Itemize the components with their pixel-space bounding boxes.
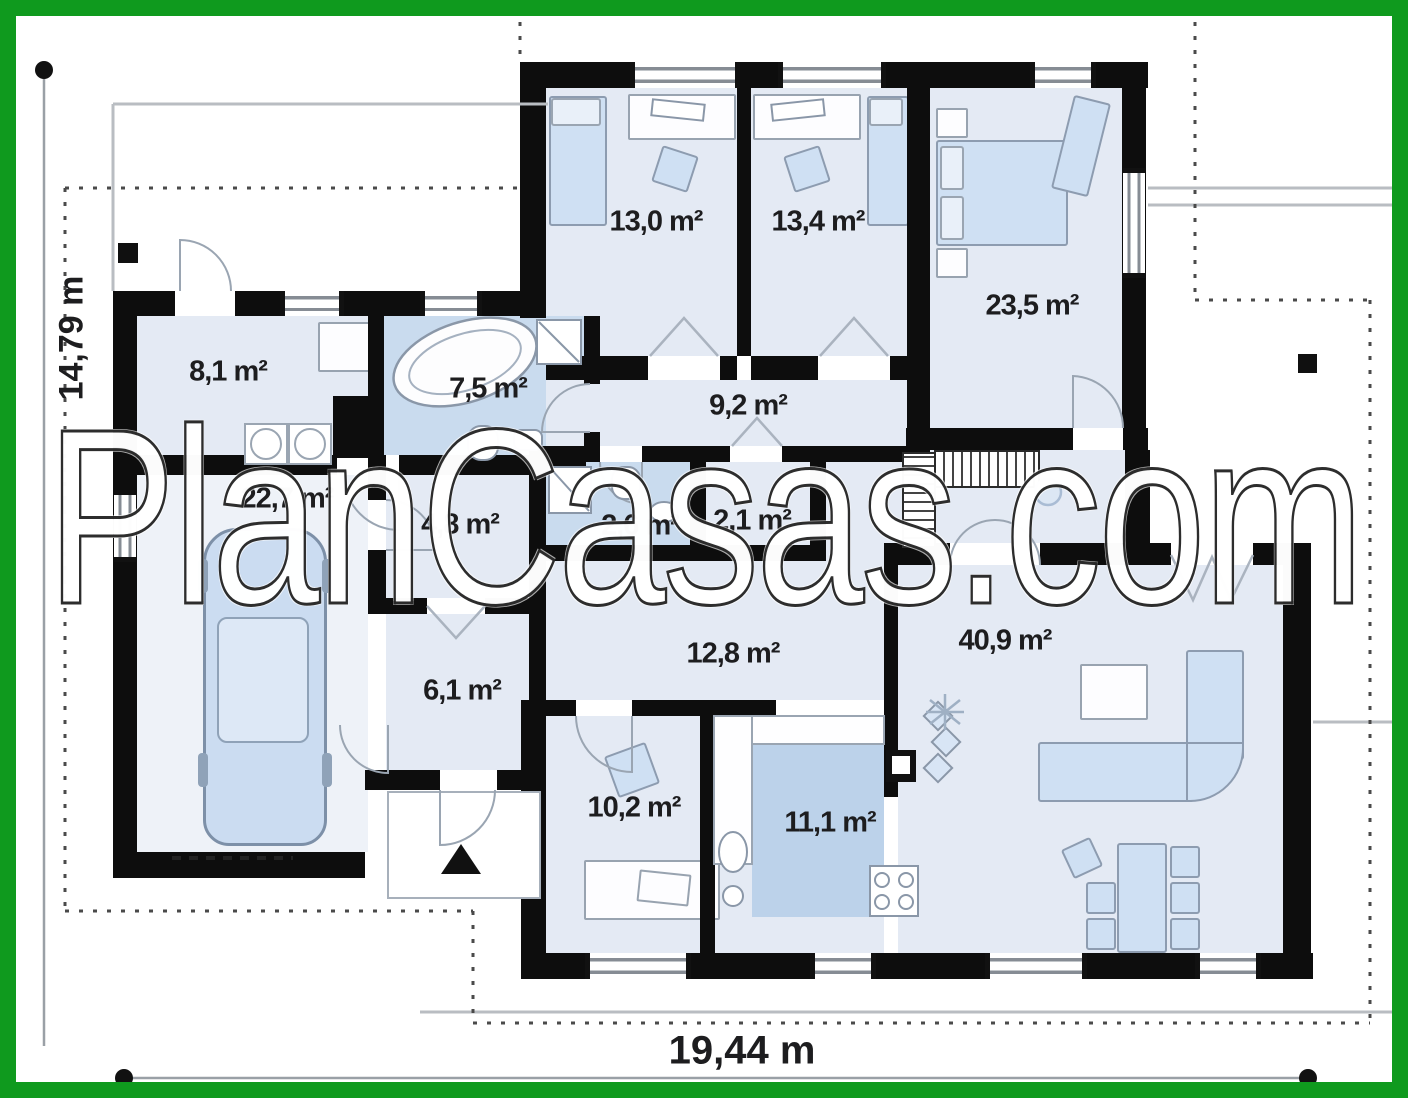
label-master-bedroom: 23,5 m² xyxy=(986,290,1079,323)
kitchen-stove xyxy=(870,866,918,916)
label-closet: 2,1 m² xyxy=(713,505,791,538)
kitchen-sink xyxy=(719,832,747,872)
label-hall-small: 4,8 m² xyxy=(421,509,499,542)
label-bathroom: 7,5 m² xyxy=(449,373,527,406)
entrance-porch xyxy=(388,792,540,898)
label-corridor: 9,2 m² xyxy=(709,390,787,423)
roof-eave-lines xyxy=(113,104,1396,1012)
shower-bathroom xyxy=(537,320,581,364)
plan-linework xyxy=(0,0,1408,1098)
desk-monitors xyxy=(651,99,824,120)
ceiling-lamp xyxy=(1035,479,1061,505)
label-entry-hall: 8,1 m² xyxy=(189,356,267,389)
label-office: 10,2 m² xyxy=(588,792,681,825)
label-wc: 2,6 m² xyxy=(601,510,679,543)
label-living-room: 40,9 m² xyxy=(959,625,1052,658)
terrace-door-zigzag xyxy=(1171,555,1253,600)
washing-machines xyxy=(245,424,331,464)
toilet-bathroom xyxy=(468,426,498,460)
label-bedroom-1: 13,0 m² xyxy=(610,206,703,239)
floor-plan-image: 13,0 m² 13,4 m² 23,5 m² 8,1 m² 7,5 m² 9,… xyxy=(0,0,1408,1098)
dimension-height: 14,79 m xyxy=(53,276,92,401)
label-kitchen: 11,1 m² xyxy=(784,807,875,840)
label-garage: 22,7 m² xyxy=(241,483,334,516)
label-vestibule: 6,1 m² xyxy=(423,675,501,708)
label-bedroom-2: 13,4 m² xyxy=(772,206,865,239)
door-arcs xyxy=(180,240,1123,845)
shower-wc xyxy=(549,467,591,513)
sink-bathroom xyxy=(514,430,542,450)
label-hall: 12,8 m² xyxy=(687,638,780,671)
dimension-width: 19,44 m xyxy=(669,1029,816,1074)
